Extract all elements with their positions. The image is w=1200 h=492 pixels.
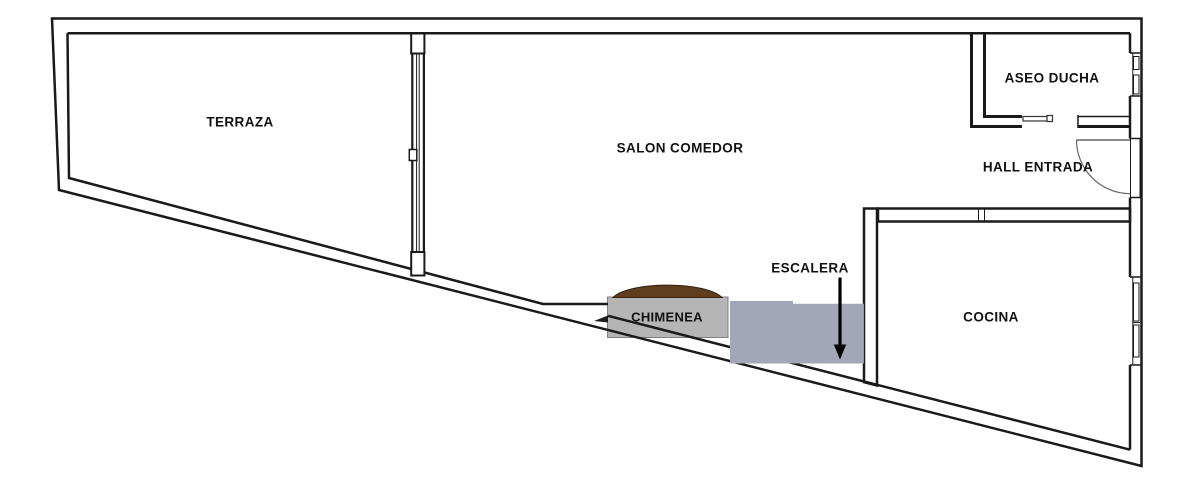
interior-sloped-wall-left xyxy=(68,33,609,304)
floor-plan-canvas: TERRAZA SALON COMEDOR ASEO DUCHA HALL EN… xyxy=(0,0,1200,492)
aseo-door-stop xyxy=(1047,116,1053,122)
hall-door-opening xyxy=(1131,139,1141,198)
stairs xyxy=(730,278,864,364)
window-sash xyxy=(1134,75,1140,94)
partition-top-post xyxy=(411,34,424,54)
hall-entrada-label: HALL ENTRADA xyxy=(983,160,1093,175)
hearth-wedge xyxy=(594,316,608,323)
window-sash xyxy=(1134,283,1140,321)
chimenea-label: CHIMENEA xyxy=(631,310,703,325)
salon-comedor-label: SALON COMEDOR xyxy=(617,141,744,156)
escalera-label: ESCALERA xyxy=(771,261,848,276)
stairs-block xyxy=(730,301,864,364)
aseo-door-rail xyxy=(1023,117,1048,122)
cocina-label: COCINA xyxy=(963,310,1019,325)
salon-cocina-wall xyxy=(864,209,877,386)
hall-cocina-wall xyxy=(878,209,1130,222)
window-sash xyxy=(1134,57,1140,70)
aseo-ducha-label: ASEO DUCHA xyxy=(1005,71,1100,86)
fireplace-hood xyxy=(613,285,722,297)
exterior-wall-outline xyxy=(52,19,1142,467)
partition-bottom-post xyxy=(411,252,424,276)
aseo-window xyxy=(1133,53,1139,96)
window-sash xyxy=(1134,325,1140,357)
cocina-window xyxy=(1133,277,1140,365)
right-wall xyxy=(1130,33,1142,449)
window-handle xyxy=(409,150,417,161)
terraza-label: TERRAZA xyxy=(206,115,273,130)
terrace-salon-window-wall xyxy=(409,34,424,276)
